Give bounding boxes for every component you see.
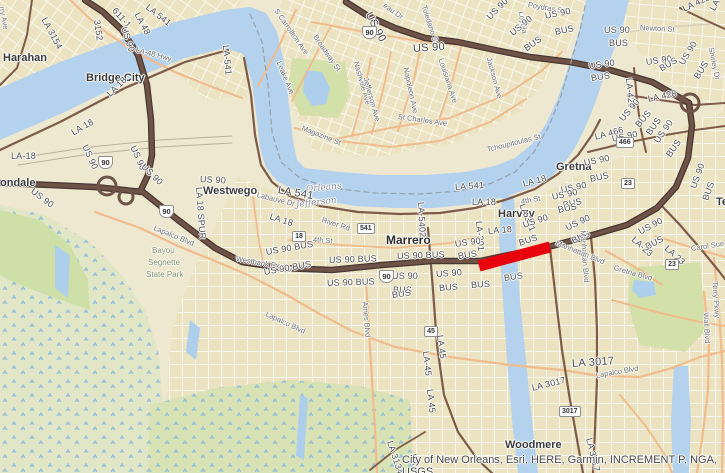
us-route-shield-90: 90: [98, 156, 113, 169]
map-label: ondale: [0, 177, 35, 189]
la-route-shield-18: 18: [292, 231, 306, 242]
la-route-shield-3017: 3017: [559, 406, 581, 417]
map-label: Woodmere: [505, 439, 562, 451]
map-label: US 90: [436, 267, 463, 279]
us-route-shield-90: 90: [159, 205, 174, 218]
map-label: LA-5402: [416, 202, 428, 238]
map-label: LA 541: [455, 180, 485, 192]
map-label: LA-18: [11, 151, 36, 161]
railroad-2: [18, 143, 232, 165]
la-route-shield-541: 541: [357, 223, 375, 234]
map-label: LA 18: [488, 224, 513, 236]
map-label: Westwego: [203, 185, 257, 197]
map-label: Bayou: [152, 246, 175, 255]
la-route-shield-23: 23: [621, 178, 635, 189]
map-label: US 90: [604, 25, 630, 35]
us-route-shield-90: 90: [362, 26, 377, 39]
map-label: Newton St: [640, 23, 675, 34]
la-route-shield-45: 45: [424, 326, 438, 337]
map-label: Segnette: [148, 258, 180, 267]
map-canvas[interactable]: HarahanBridge CityondaleWestwegoMarreroH…: [0, 0, 725, 473]
map-label: Harahan: [3, 52, 47, 64]
map-label: US 90: [413, 41, 446, 55]
map-label: Wall Blvd: [702, 312, 713, 343]
map-label: LA 18: [472, 197, 496, 207]
map-label: BUS: [471, 279, 491, 290]
map-label: US 90: [392, 271, 418, 281]
la-route-shield-466: 466: [616, 137, 634, 148]
map-label: Terrytown: [716, 196, 725, 208]
map-label: BUS: [609, 38, 628, 48]
map-attribution: City of New Orleans, Esri, HERE, Garmin,…: [402, 454, 725, 473]
map-label: BUS: [439, 282, 459, 293]
map-label: US 90: [200, 174, 227, 185]
us-route-shield-90: 90: [379, 270, 394, 283]
map-label: US 90 BUS: [329, 253, 377, 265]
railroad-1: [18, 136, 232, 158]
map-label: State Park: [146, 270, 183, 279]
map-label: US 90 BUS: [397, 249, 445, 261]
map-label: US 90 BUS: [327, 276, 375, 288]
la-route-shield-23: 23: [665, 259, 679, 270]
map-label: 4th St: [313, 235, 333, 245]
